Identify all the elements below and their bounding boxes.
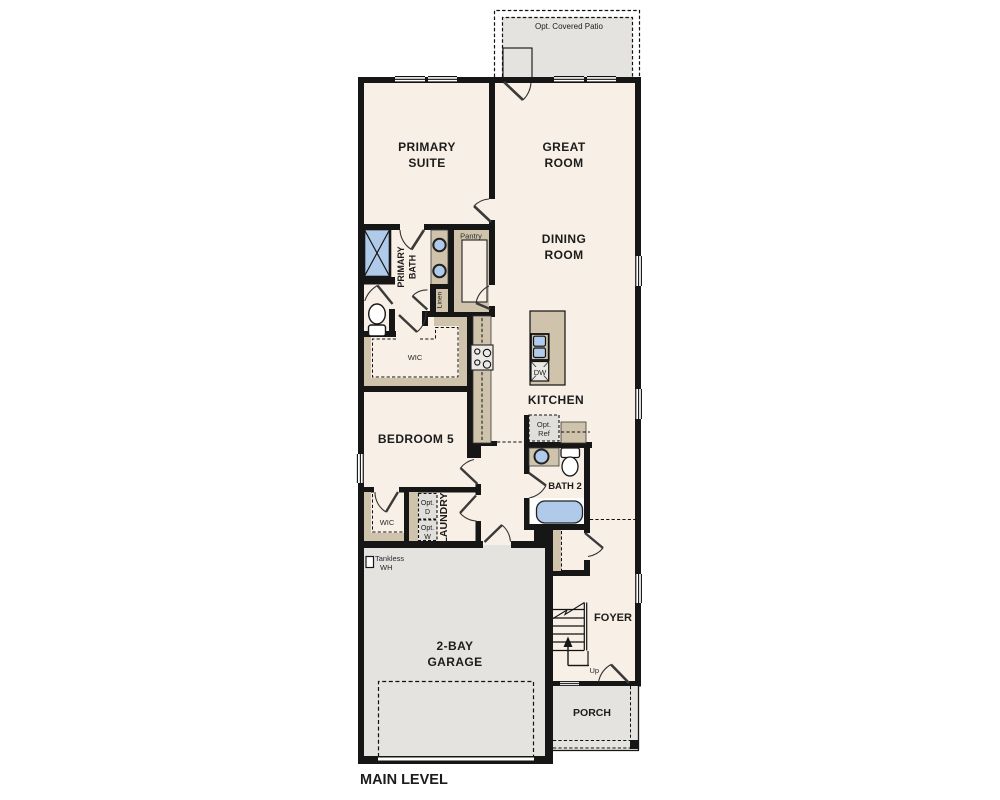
svg-text:ROOM: ROOM xyxy=(545,156,584,170)
svg-text:WH: WH xyxy=(380,563,393,572)
svg-text:Ref: Ref xyxy=(538,429,551,438)
svg-text:LAUNDRY: LAUNDRY xyxy=(438,493,450,544)
svg-text:PORCH: PORCH xyxy=(573,707,611,719)
svg-text:BEDROOM 5: BEDROOM 5 xyxy=(378,432,454,446)
svg-text:WIC: WIC xyxy=(380,518,395,527)
svg-text:Tankless: Tankless xyxy=(375,554,404,563)
svg-text:DW: DW xyxy=(534,368,547,377)
svg-text:Up: Up xyxy=(590,666,600,675)
svg-text:PRIMARY: PRIMARY xyxy=(396,246,406,287)
svg-text:BATH 2: BATH 2 xyxy=(548,481,582,492)
svg-text:Linen: Linen xyxy=(437,291,444,308)
svg-text:FOYER: FOYER xyxy=(594,612,632,624)
svg-text:KITCHEN: KITCHEN xyxy=(528,393,584,407)
svg-text:Opt.: Opt. xyxy=(537,420,551,429)
svg-text:PRIMARY: PRIMARY xyxy=(398,140,456,154)
svg-text:BATH: BATH xyxy=(408,255,418,279)
svg-text:DINING: DINING xyxy=(542,232,586,246)
svg-text:WIC: WIC xyxy=(408,353,423,362)
svg-text:SUITE: SUITE xyxy=(408,156,445,170)
svg-text:MAIN LEVEL: MAIN LEVEL xyxy=(360,772,448,788)
svg-text:ROOM: ROOM xyxy=(545,248,584,262)
svg-text:GREAT: GREAT xyxy=(542,140,585,154)
svg-text:Opt.: Opt. xyxy=(421,525,434,532)
svg-text:Opt.: Opt. xyxy=(421,500,434,507)
svg-text:D: D xyxy=(425,509,430,516)
svg-text:W: W xyxy=(424,534,431,541)
svg-text:2-BAY: 2-BAY xyxy=(437,639,474,653)
svg-text:GARAGE: GARAGE xyxy=(427,655,482,669)
svg-text:Pantry: Pantry xyxy=(460,232,482,241)
svg-text:Opt. Covered Patio: Opt. Covered Patio xyxy=(535,22,604,31)
